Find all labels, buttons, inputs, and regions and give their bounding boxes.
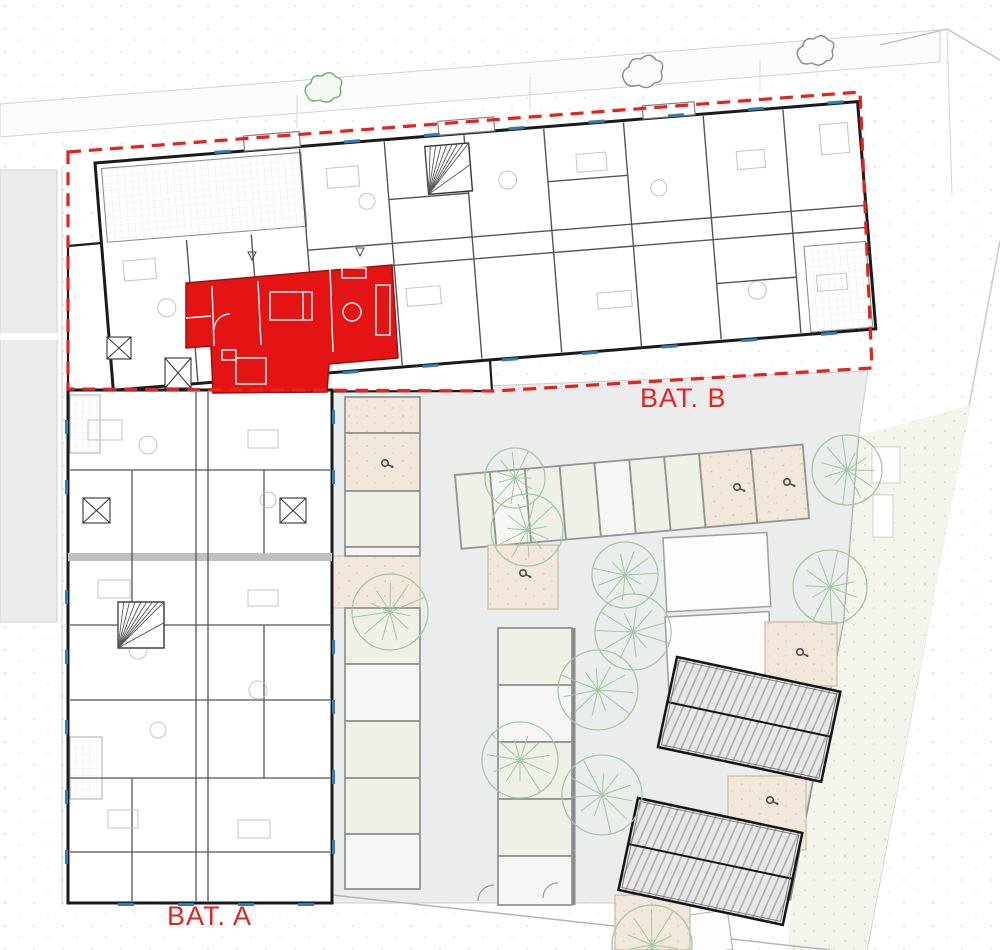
site-plan-canvas: BAT. B BAT. A: [0, 0, 1000, 950]
parking-column-center: [498, 628, 574, 905]
parking-stall: [498, 799, 572, 856]
roof-terrace-grid: [804, 241, 873, 332]
parking-stall: [345, 834, 420, 889]
x-shutter-icon: [107, 337, 131, 359]
parking-stall: [498, 685, 572, 742]
x-shutter-icon: [83, 498, 110, 523]
site-plan: BAT. B BAT. A: [0, 0, 1000, 950]
label-building-b: BAT. B: [640, 383, 727, 413]
entry-walkway: [332, 556, 420, 608]
parking-stall: [345, 397, 420, 433]
building-a: [67, 390, 334, 905]
terrace-grid: [70, 395, 100, 453]
parking-stall: [699, 449, 757, 527]
label-building-a: BAT. A: [167, 901, 252, 931]
parking-pad: [765, 622, 837, 686]
x-shutter-icon: [280, 498, 306, 523]
terrace-grid: [70, 737, 102, 799]
parking-stall: [345, 778, 420, 834]
stair-fan-icon: [118, 602, 164, 648]
expansion-joint: [68, 553, 332, 561]
parking-column-west: [332, 397, 420, 889]
parking-stall: [751, 445, 809, 523]
parking-stall: [345, 664, 420, 721]
parking-stall: [345, 491, 420, 547]
parking-stall: [498, 856, 572, 905]
x-shutter-icon: [165, 358, 191, 388]
roof-terrace-grid: [101, 152, 306, 242]
stair-fan-icon: [425, 143, 473, 194]
parking-stall: [345, 721, 420, 778]
parking-stall: [345, 547, 420, 556]
